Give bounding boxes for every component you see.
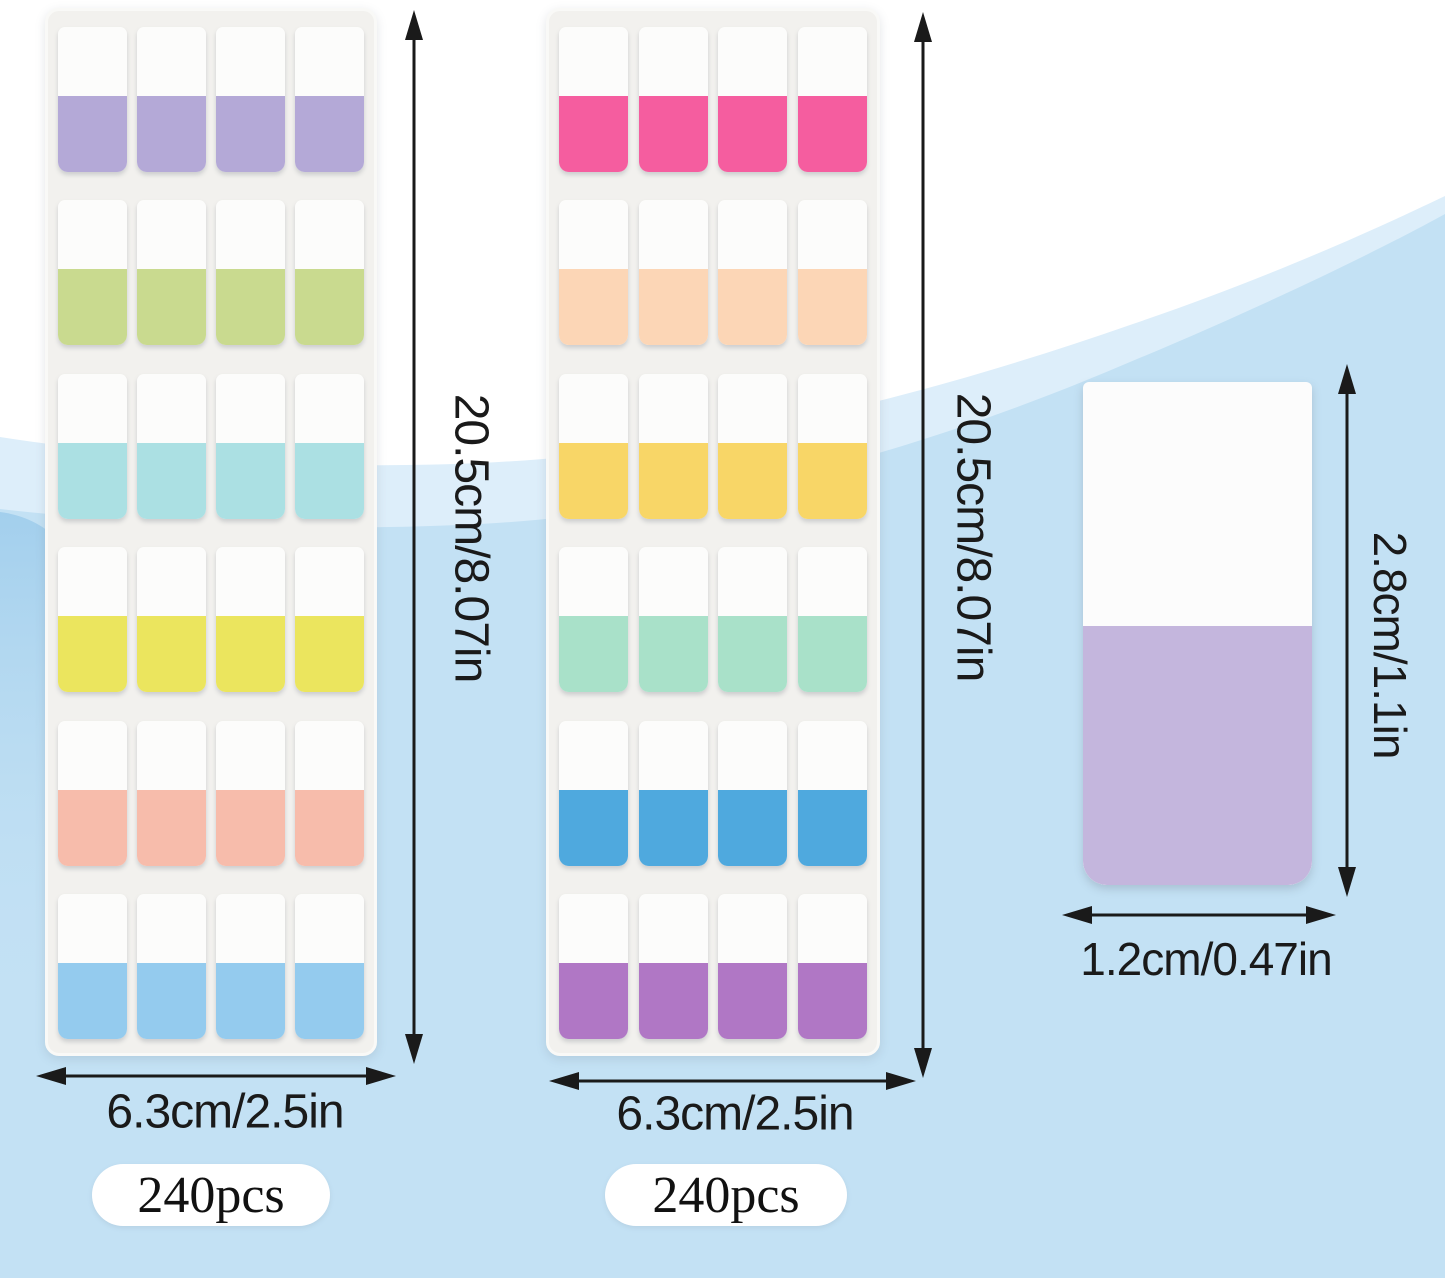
index-tab [295,374,364,519]
tab-color-area [295,963,364,1039]
tab-color-area [559,616,628,692]
index-tab [798,27,867,172]
tab-color-area [295,269,364,345]
index-tab [58,27,127,172]
tab-color-area [798,443,867,519]
tab-sheet-bright [546,8,880,1056]
tab-color-area [559,269,628,345]
sheet1-count-badge: 240pcs [92,1164,330,1226]
tab-row [559,200,867,345]
tab-color-area [216,790,285,866]
tab-color-area [58,443,127,519]
index-tab [216,894,285,1039]
tab-color-area [216,443,285,519]
index-tab [639,374,708,519]
index-tab [137,374,206,519]
tab-color-area [718,790,787,866]
tab-row [58,200,364,345]
index-tab [639,27,708,172]
tab-color-area [639,616,708,692]
index-tab [559,200,628,345]
tab-color-area [58,790,127,866]
index-tab [639,721,708,866]
index-tab [58,200,127,345]
sheet2-height-label: 20.5cm/8.07in [946,393,1001,682]
tab-color-area [216,963,285,1039]
tab-row [559,547,867,692]
index-tab [718,721,787,866]
tab-row [58,27,364,172]
tab-row [559,894,867,1039]
index-tab [295,894,364,1039]
index-tab [639,547,708,692]
index-tab [718,547,787,692]
sheet2-count-badge: 240pcs [605,1164,847,1226]
tab-color-area [798,963,867,1039]
index-tab [798,894,867,1039]
tab-color-area [295,443,364,519]
index-tab [798,547,867,692]
tab-color-area [639,963,708,1039]
index-tab [216,374,285,519]
tab-color-area [58,963,127,1039]
tab-color-area [798,96,867,172]
tab-color-area [137,790,206,866]
index-tab [639,200,708,345]
single-tab-height-label: 2.8cm/1.1in [1363,532,1417,759]
tab-color-area [216,616,285,692]
tab-color-area [559,443,628,519]
sheet1-width-label: 6.3cm/2.5in [106,1085,343,1140]
index-tab [137,200,206,345]
tab-color-area [137,963,206,1039]
product-size-diagram: 20.5cm/8.07in 20.5cm/8.07in 2.8cm/1.1in … [0,0,1445,1278]
index-tab [295,27,364,172]
index-tab [559,27,628,172]
index-tab [58,894,127,1039]
index-tab [559,547,628,692]
index-tab [295,721,364,866]
index-tab [559,894,628,1039]
sheet1-width-arrow [36,1067,396,1085]
sheet1-count-text: 240pcs [137,1166,284,1225]
tab-color-area [58,96,127,172]
tab-color-area [718,616,787,692]
tab-color-area [639,443,708,519]
sheet2-height-arrow [914,12,932,1078]
sheet1-height-arrow [405,10,423,1064]
tab-row [559,27,867,172]
single-tab-height-arrow [1338,364,1356,897]
index-tab [137,894,206,1039]
single-tab [1083,382,1312,885]
tab-color-area [559,96,628,172]
tab-color-area [639,269,708,345]
tab-color-area [137,269,206,345]
tab-color-area [798,269,867,345]
tab-color-area [137,616,206,692]
tab-color-area [216,269,285,345]
tab-color-area [798,790,867,866]
single-tab-width-arrow [1062,906,1336,924]
index-tab [58,721,127,866]
index-tab [216,547,285,692]
sheet2-count-text: 240pcs [652,1166,799,1225]
tab-color-area [639,96,708,172]
tab-color-area [216,96,285,172]
tab-color-area [639,790,708,866]
tab-color-area [718,96,787,172]
index-tab [798,200,867,345]
tab-color-area [718,963,787,1039]
tab-row [58,721,364,866]
index-tab [798,721,867,866]
tab-color-area [58,616,127,692]
index-tab [718,374,787,519]
tab-row [58,894,364,1039]
index-tab [137,721,206,866]
index-tab [137,547,206,692]
tab-row [58,547,364,692]
tab-row [58,374,364,519]
tab-color-area [798,616,867,692]
index-tab [639,894,708,1039]
tab-color-area [137,443,206,519]
tab-color-area [559,963,628,1039]
tab-color-area [137,96,206,172]
index-tab [58,547,127,692]
index-tab [798,374,867,519]
index-tab [137,27,206,172]
tab-color-area [58,269,127,345]
tab-color-area [295,96,364,172]
tab-sheet-pastel [45,8,377,1056]
tab-color-area [718,269,787,345]
index-tab [58,374,127,519]
index-tab [295,200,364,345]
index-tab [718,27,787,172]
index-tab [295,547,364,692]
single-tab-width-label: 1.2cm/0.47in [1080,932,1331,986]
single-tab-color [1083,626,1312,885]
tab-color-area [295,790,364,866]
index-tab [718,894,787,1039]
tab-row [559,721,867,866]
tab-color-area [559,790,628,866]
index-tab [559,374,628,519]
index-tab [559,721,628,866]
index-tab [216,27,285,172]
sheet2-width-label: 6.3cm/2.5in [616,1087,853,1142]
sheet1-height-label: 20.5cm/8.07in [444,394,499,683]
tab-color-area [295,616,364,692]
index-tab [216,200,285,345]
index-tab [718,200,787,345]
tab-row [559,374,867,519]
index-tab [216,721,285,866]
tab-color-area [718,443,787,519]
